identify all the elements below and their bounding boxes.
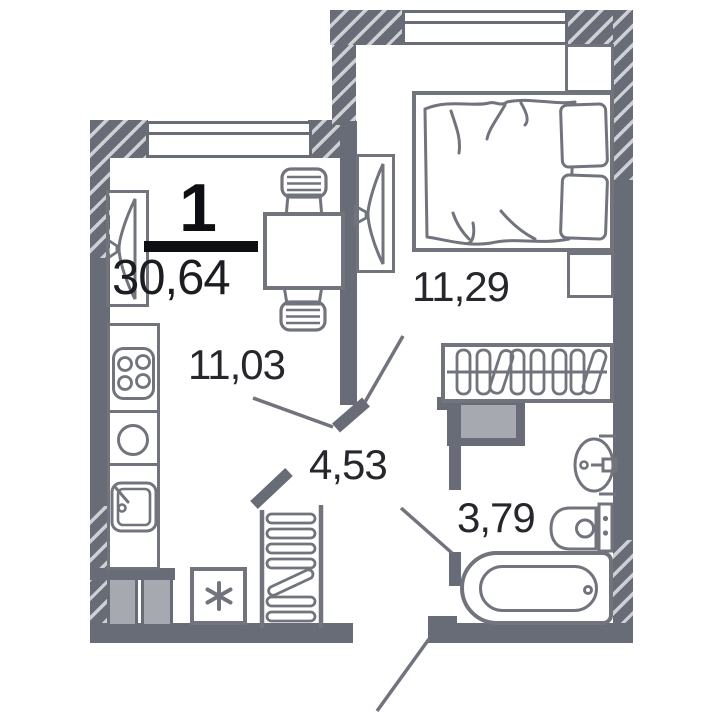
counter-divider <box>107 463 160 466</box>
door-jamb <box>336 402 366 428</box>
door-leaf-entrance <box>377 639 429 711</box>
counter-divider <box>107 410 160 413</box>
pillow <box>559 102 609 169</box>
door-leaf-bathroom <box>401 508 452 553</box>
door-leaf-living <box>253 398 333 427</box>
apartment-total-area: 30,64 <box>112 254 230 303</box>
coat-rack <box>248 466 326 632</box>
room-area-label-hallway: 4,53 <box>309 444 387 486</box>
nightstand <box>565 44 614 93</box>
toilet-icon <box>548 502 614 556</box>
bathroom-sink-icon <box>571 431 616 499</box>
stove-icon <box>112 347 155 400</box>
pillow <box>559 173 609 241</box>
wall-chamfer-stub <box>254 472 289 505</box>
apartment-rooms-count: 1 <box>156 174 240 242</box>
duct-box <box>107 577 138 627</box>
dining-table <box>263 212 345 290</box>
bathtub-drain-icon <box>583 585 593 595</box>
room-area-label-bedroom: 11,29 <box>412 266 509 308</box>
nightstand <box>567 252 614 298</box>
door-leaf-bedroom <box>365 336 403 402</box>
duvet <box>417 95 583 247</box>
wardrobe-hangers-icon <box>445 347 610 399</box>
tv-icon <box>355 154 398 274</box>
round-sink-icon <box>117 424 149 456</box>
washing-machine-mark-icon <box>205 582 233 610</box>
floor-plan: 1 30,64 11,03 11,29 4,53 3,79 <box>0 0 720 720</box>
chair <box>279 286 327 332</box>
kitchen-sink-icon <box>110 481 158 533</box>
bathtub-inner <box>479 565 598 612</box>
duct-box <box>141 577 173 627</box>
room-area-label-bathroom: 3,79 <box>457 497 535 539</box>
room-area-label-kitchen-living: 11,03 <box>188 344 285 386</box>
